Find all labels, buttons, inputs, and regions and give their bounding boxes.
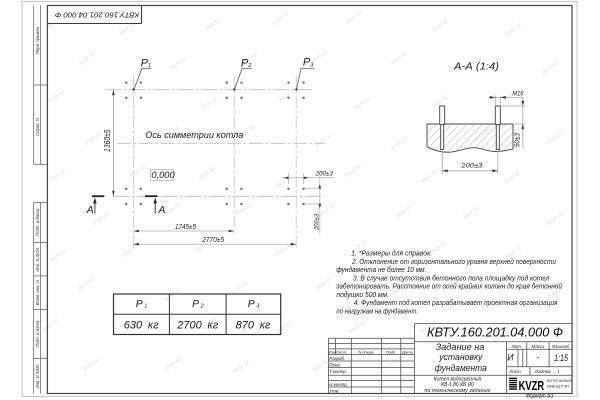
svg-text:ЗАВОД РЭП: ЗАВОД РЭП xyxy=(547,384,569,389)
svg-text:kvzr.ru: kvzr.ru xyxy=(201,96,219,112)
svg-text:Перв. примен.: Перв. примен. xyxy=(35,26,40,55)
svg-text:kvzr.ru: kvzr.ru xyxy=(349,319,367,335)
svg-text:Р: Р xyxy=(136,299,143,310)
svg-text:kvzr.ru: kvzr.ru xyxy=(391,136,409,152)
svg-text:200±3: 200±3 xyxy=(460,163,483,170)
svg-text:kvzr.ru: kvzr.ru xyxy=(276,320,294,336)
svg-text:kvzr.ru: kvzr.ru xyxy=(547,211,565,227)
svg-text:200±3: 200±3 xyxy=(315,171,333,178)
svg-text:kvzr.ru: kvzr.ru xyxy=(130,164,148,180)
svg-text:1360±5: 1360±5 xyxy=(103,129,112,152)
svg-text:Утв.: Утв. xyxy=(329,388,339,393)
svg-text:А: А xyxy=(86,204,94,216)
svg-text:1: 1 xyxy=(144,304,147,310)
svg-text:kvzr.ru: kvzr.ru xyxy=(93,211,111,227)
svg-text:kvzr.ru: kvzr.ru xyxy=(49,168,67,184)
svg-text:2: 2 xyxy=(200,304,204,310)
svg-text:2700: 2700 xyxy=(176,320,202,332)
svg-text:kvzr.ru: kvzr.ru xyxy=(236,201,254,217)
svg-text:Листов: Листов xyxy=(534,369,552,374)
svg-text:Инв. N дубл.: Инв. N дубл. xyxy=(35,247,40,272)
svg-text:Инв. N подл.: Инв. N подл. xyxy=(35,363,40,388)
svg-text:kvzr.ru: kvzr.ru xyxy=(165,356,183,372)
svg-text:Масса: Масса xyxy=(532,344,546,349)
svg-text:Н.контр.: Н.контр. xyxy=(329,382,348,387)
svg-text:kvzr.ru: kvzr.ru xyxy=(232,280,250,296)
svg-text:Т.контр.: Т.контр. xyxy=(329,369,347,374)
svg-text:Взам. инв. N: Взам. инв. N xyxy=(35,279,40,305)
svg-text:kvzr.ru: kvzr.ru xyxy=(316,276,334,292)
svg-text:kvzr.ru: kvzr.ru xyxy=(276,174,294,190)
svg-text:kvzr.ru: kvzr.ru xyxy=(430,240,448,256)
svg-text:kvzr.ru: kvzr.ru xyxy=(315,133,333,149)
svg-text:Масштаб: Масштаб xyxy=(552,344,569,349)
svg-text:И: И xyxy=(507,353,514,363)
svg-text:0,000: 0,000 xyxy=(151,170,175,180)
svg-text:kvzr.ru: kvzr.ru xyxy=(312,358,330,374)
svg-text:Формат А3: Формат А3 xyxy=(526,394,554,400)
svg-text:kvzr.ru: kvzr.ru xyxy=(279,87,297,103)
svg-text:1: 1 xyxy=(557,369,560,374)
svg-text:kvzr.ru: kvzr.ru xyxy=(50,248,68,264)
svg-text:kvzr.ru: kvzr.ru xyxy=(79,51,97,67)
svg-text:Разраб.: Разраб. xyxy=(329,356,345,361)
svg-text:kvzr.ru: kvzr.ru xyxy=(547,130,565,146)
svg-text:N докум.: N докум. xyxy=(358,349,374,354)
svg-text:кг: кг xyxy=(148,320,159,332)
svg-text:фундамента: фундамента xyxy=(435,363,487,373)
svg-text:Лист: Лист xyxy=(335,349,347,354)
svg-text:Ось симметрии котла: Ось симметрии котла xyxy=(145,130,243,140)
svg-text:200±3: 200±3 xyxy=(313,214,320,231)
svg-text:kvzr.ru: kvzr.ru xyxy=(390,51,408,67)
svg-text:Задание на: Задание на xyxy=(436,342,485,352)
svg-text:kvzr.ru: kvzr.ru xyxy=(165,287,183,303)
svg-text:Пров.: Пров. xyxy=(329,362,341,367)
svg-text:Дата: Дата xyxy=(401,349,413,354)
svg-text:по техническому заданию: по техническому заданию xyxy=(425,388,491,394)
svg-text:по нагрузкам на фундамент.: по нагрузкам на фундамент. xyxy=(336,306,418,315)
svg-text:А-А (1:4): А-А (1:4) xyxy=(453,61,499,72)
svg-text:кг: кг xyxy=(208,320,219,332)
svg-text:КВТУ.160.201.04.000 Ф: КВТУ.160.201.04.000 Ф xyxy=(427,326,563,340)
svg-text:kvzr.ru: kvzr.ru xyxy=(204,17,222,33)
svg-text:Р: Р xyxy=(192,299,199,310)
svg-text:870: 870 xyxy=(236,320,255,332)
svg-text:Р: Р xyxy=(248,299,255,310)
svg-text:-: - xyxy=(537,352,540,361)
svg-text:1:15: 1:15 xyxy=(554,353,568,364)
svg-text:kvzr.ru: kvzr.ru xyxy=(233,359,251,375)
svg-text:kvzr.ru: kvzr.ru xyxy=(164,202,182,218)
svg-text:KVZR: KVZR xyxy=(519,379,545,393)
svg-text:kvzr.ru: kvzr.ru xyxy=(83,357,101,373)
svg-text:Лист: Лист xyxy=(508,369,521,374)
svg-text:А: А xyxy=(157,204,165,216)
svg-text:kvzr.ru: kvzr.ru xyxy=(346,10,364,26)
svg-text:kvzr.ru: kvzr.ru xyxy=(421,169,439,185)
svg-text:kvzr.ru: kvzr.ru xyxy=(432,18,450,34)
svg-text:kvzr.ru: kvzr.ru xyxy=(199,166,217,182)
svg-text:Лит.: Лит. xyxy=(511,344,522,349)
svg-text:kvzr.ru: kvzr.ru xyxy=(272,11,290,27)
svg-text:kvzr.ru: kvzr.ru xyxy=(319,203,337,219)
svg-text:Подп. и дата: Подп. и дата xyxy=(35,320,40,348)
svg-text:kvzr.ru: kvzr.ru xyxy=(505,22,523,38)
svg-text:kvzr.ru: kvzr.ru xyxy=(170,56,188,72)
svg-text:Подп.: Подп. xyxy=(386,349,397,354)
svg-text:1: 1 xyxy=(148,63,151,69)
svg-text:М16: М16 xyxy=(512,90,523,97)
svg-text:630: 630 xyxy=(124,320,143,332)
svg-text:кг: кг xyxy=(260,320,271,332)
svg-text:2770±5: 2770±5 xyxy=(201,237,224,244)
svg-text:Подп. и дата: Подп. и дата xyxy=(35,208,40,236)
svg-text:kvzr.ru: kvzr.ru xyxy=(354,96,372,112)
svg-text:50±3: 50±3 xyxy=(513,133,522,147)
svg-text:kvzr.ru: kvzr.ru xyxy=(463,205,481,221)
svg-text:kvzr.ru: kvzr.ru xyxy=(121,90,139,106)
svg-text:Справ. N: Справ. N xyxy=(35,117,40,136)
svg-text:kvzr.ru: kvzr.ru xyxy=(345,163,363,179)
svg-text:kvzr.ru: kvzr.ru xyxy=(85,131,103,147)
svg-text:КОТЕЛЬНЫЙ: КОТЕЛЬНЫЙ xyxy=(547,378,572,383)
svg-text:kvzr.ru: kvzr.ru xyxy=(42,318,60,334)
svg-text:1745±5: 1745±5 xyxy=(175,224,196,231)
svg-text:kvzr.ru: kvzr.ru xyxy=(504,170,522,186)
svg-text:kvzr.ru: kvzr.ru xyxy=(78,276,96,292)
svg-text:kvzr.ru: kvzr.ru xyxy=(396,204,414,220)
svg-text:установку: установку xyxy=(438,352,483,362)
svg-text:3: 3 xyxy=(256,304,260,310)
svg-text:КВТУ.160.201.04.000 Ф: КВТУ.160.201.04.000 Ф xyxy=(55,11,139,20)
svg-text:kvzr.ru: kvzr.ru xyxy=(122,243,140,259)
svg-text:kvzr.ru: kvzr.ru xyxy=(542,60,560,76)
svg-text:kvzr.ru: kvzr.ru xyxy=(48,89,66,105)
